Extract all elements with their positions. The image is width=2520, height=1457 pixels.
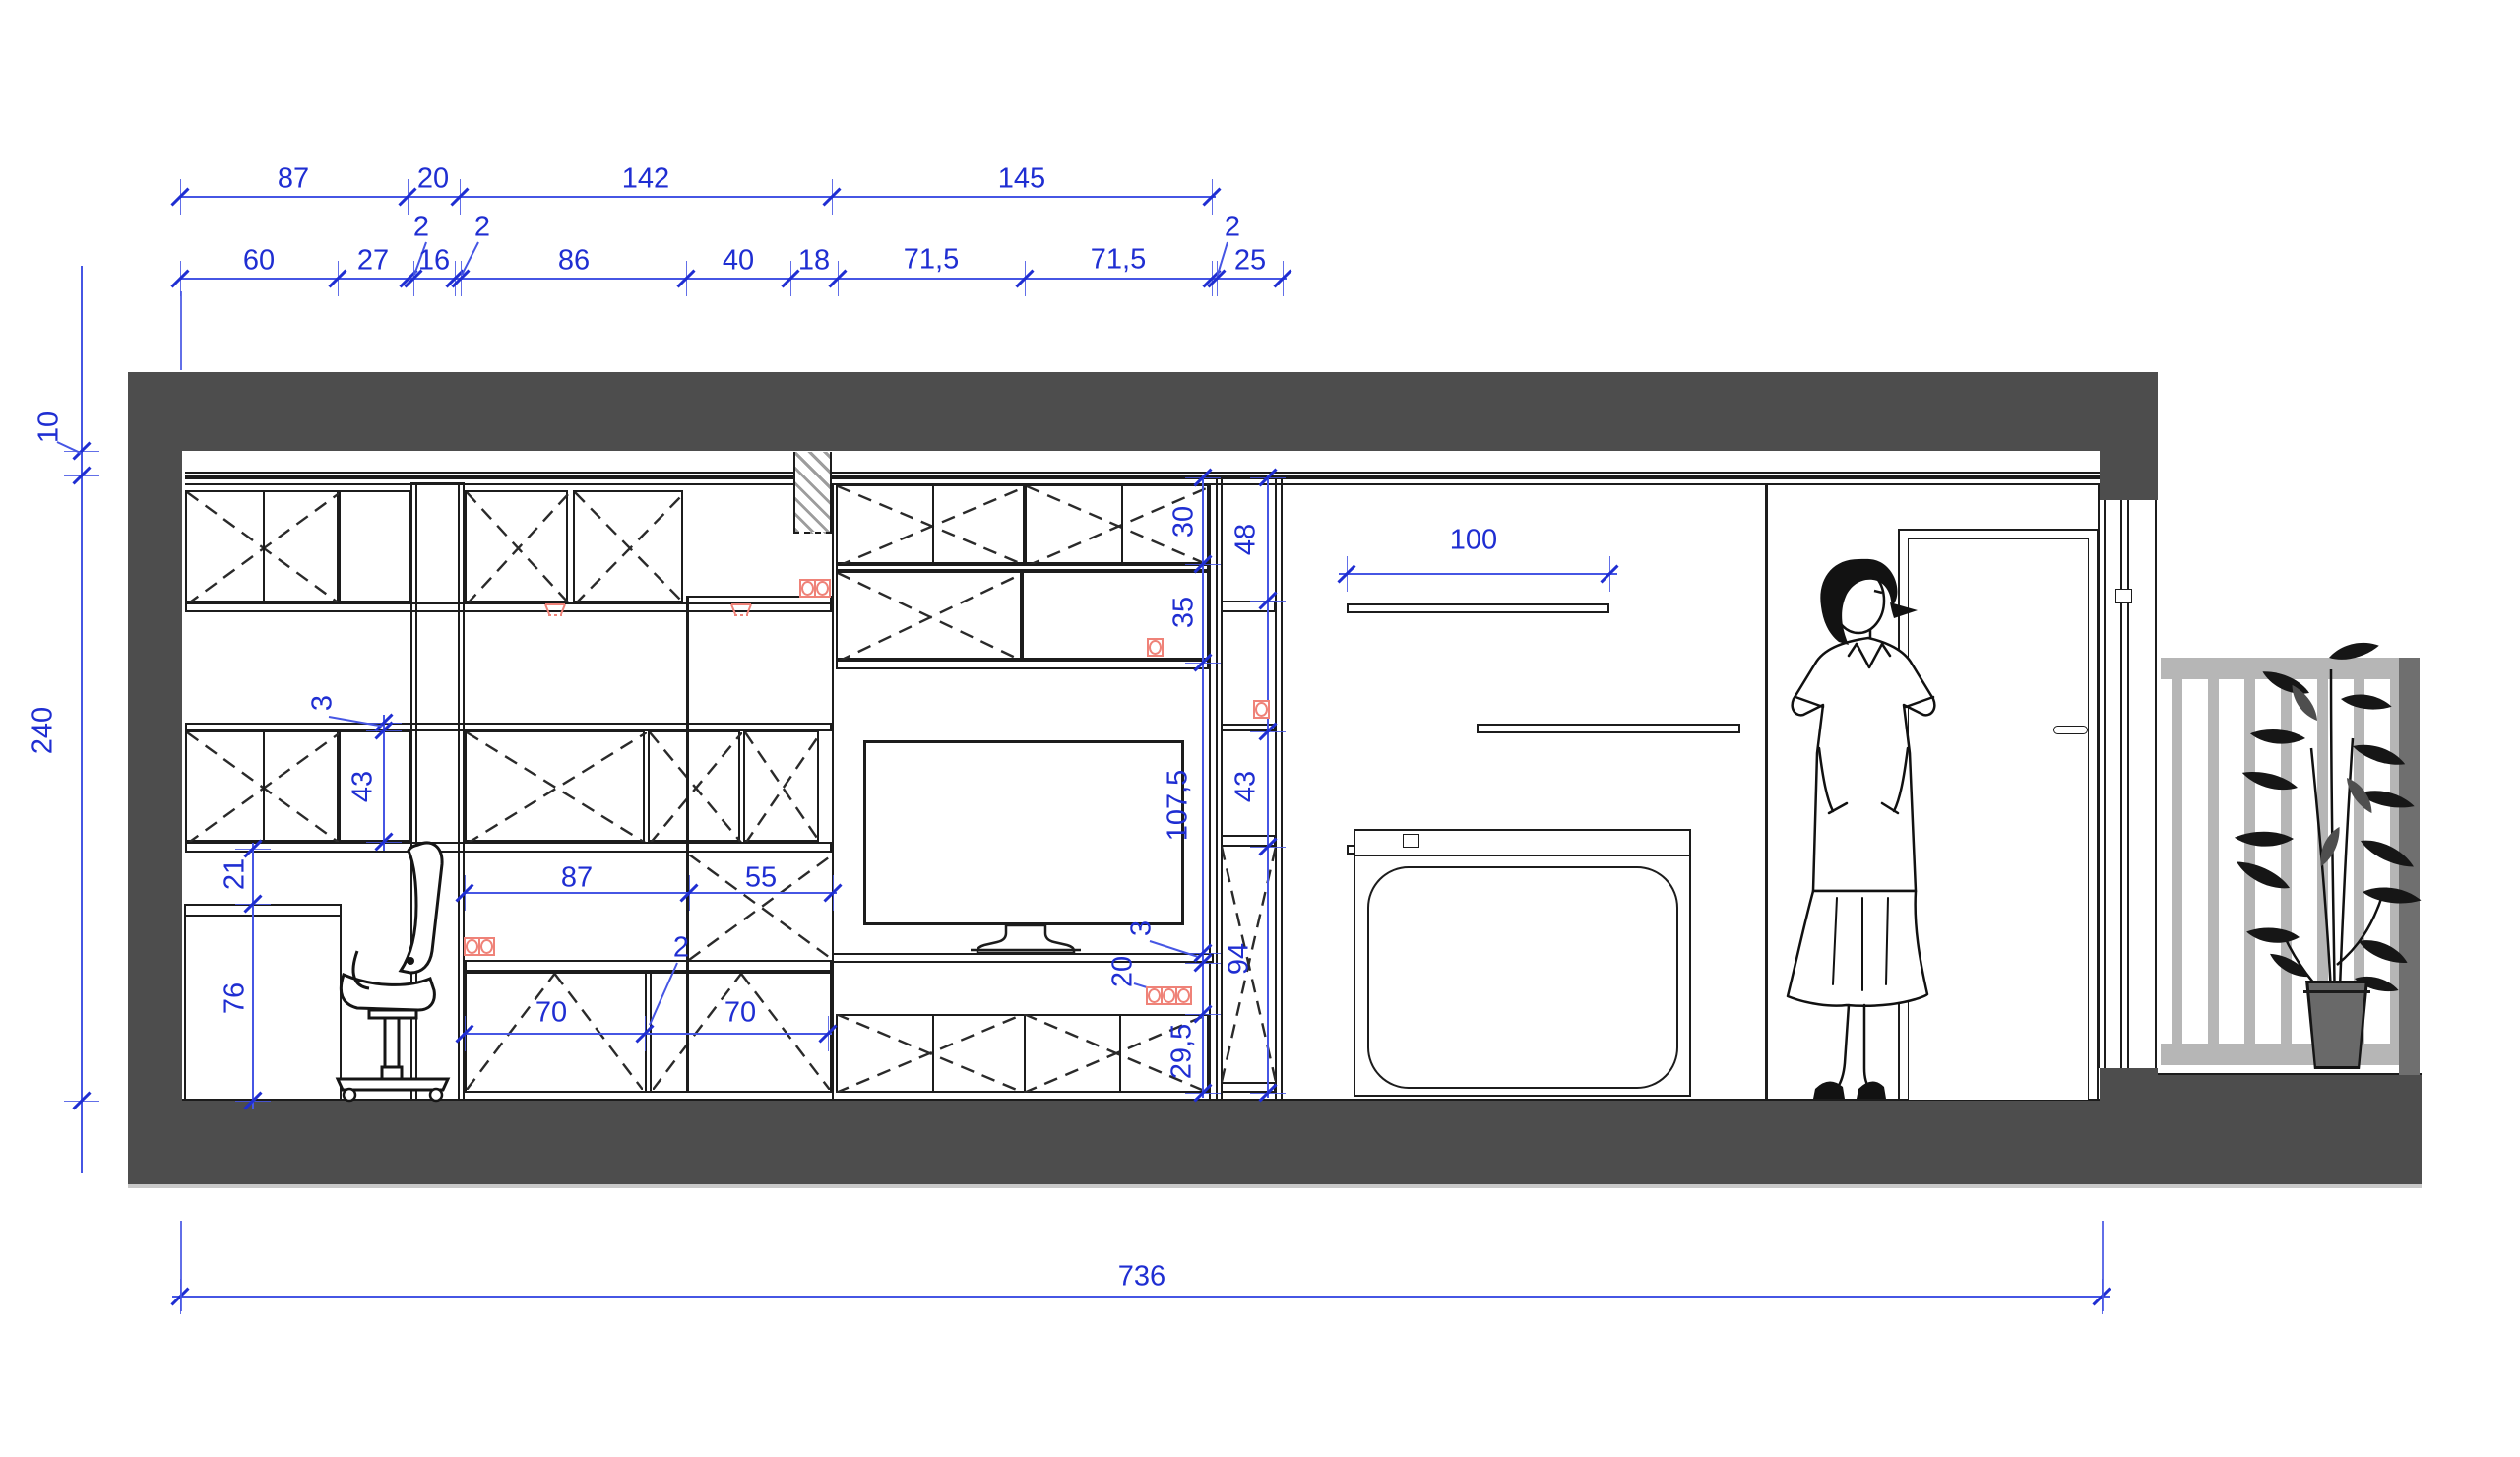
dim-label: 43 — [347, 771, 380, 802]
unit-divider — [686, 596, 689, 1093]
dim-label: 86 — [558, 245, 590, 278]
dim-label: 18 — [798, 245, 830, 278]
cabinet-box — [185, 730, 339, 842]
drawing-line — [816, 581, 829, 596]
drawing-line — [653, 974, 741, 1090]
drawing-line — [1890, 602, 1918, 618]
drawing-line — [838, 573, 1024, 662]
socket-icon — [799, 579, 831, 598]
drawing-line — [745, 732, 821, 844]
dim-label: 3 — [307, 695, 340, 711]
drawing-line — [480, 939, 493, 954]
dim-line-top-row2 — [180, 278, 1287, 280]
drawing-line — [467, 732, 647, 844]
window-frame-line — [2155, 500, 2157, 1068]
drawer-symbol — [467, 974, 643, 1090]
drawing-line — [430, 1089, 442, 1101]
cabinet-divider — [263, 492, 265, 601]
spotlight-icon — [542, 602, 568, 618]
column-side — [1216, 477, 1218, 1101]
shelf-board — [836, 564, 1209, 571]
drawing-line — [467, 974, 555, 1090]
dim-line-desk-chain — [252, 843, 254, 1109]
drawing-line — [575, 492, 685, 604]
dim-label: 35 — [1168, 597, 1201, 628]
dim-label: 71,5 — [904, 244, 959, 277]
dim-line-left-chain — [81, 266, 83, 1173]
dim-label: 94 — [1224, 943, 1256, 975]
dim-label: 40 — [723, 245, 754, 278]
drawing-line — [2245, 923, 2300, 947]
cross-lines — [650, 732, 742, 844]
drawing-line — [836, 1014, 1024, 1093]
cabinet-box — [836, 571, 1022, 660]
socket-gang — [814, 579, 831, 598]
elevation-drawing: 87201421456027216286401871,571,522510240… — [0, 0, 2520, 1457]
cross-lines — [836, 1014, 1024, 1093]
dim-label: 142 — [622, 163, 669, 196]
dim-label: 107,5 — [1163, 770, 1195, 842]
drawing-line — [2328, 640, 2381, 662]
dim-label: 71,5 — [1091, 244, 1146, 277]
drawing-line — [2249, 725, 2306, 748]
door-handle — [2053, 726, 2088, 734]
drawing-line — [467, 732, 647, 844]
socket-icon — [1147, 638, 1164, 657]
tv-unit-side — [832, 484, 834, 1101]
cross-lines — [653, 974, 830, 1090]
bathtub-overflow — [1403, 834, 1419, 848]
media-board — [832, 953, 1214, 963]
extension-line — [2102, 1221, 2104, 1311]
extension-line — [180, 291, 182, 370]
cabinet-box — [648, 730, 740, 842]
cabinet-divider — [932, 486, 934, 562]
drawing-line — [545, 604, 565, 614]
socket-gang — [1253, 700, 1270, 719]
drawing-line — [467, 492, 570, 604]
dim-line-tv-chain — [1202, 475, 1204, 1098]
office-chair — [328, 835, 458, 1103]
dim-label: 145 — [998, 163, 1045, 196]
drawing-line — [2240, 764, 2299, 797]
socket-gang — [1175, 986, 1192, 1005]
dim-label: 20 — [1107, 956, 1140, 987]
wall-shelf — [1477, 724, 1740, 733]
drawing-line — [2340, 689, 2393, 716]
wall-top-band — [128, 372, 2158, 451]
window-frame-line — [2104, 500, 2106, 1068]
tv-screen — [863, 740, 1184, 925]
cabinet-box — [743, 730, 819, 842]
drawing-line — [2351, 736, 2407, 772]
bathtub-rim-line — [1354, 855, 1691, 856]
cabinet-box — [836, 484, 1025, 564]
drawing-line — [407, 957, 414, 965]
railing-baluster — [2172, 679, 2182, 1045]
drawing-line — [401, 843, 442, 973]
cabinet-box — [465, 730, 645, 842]
drawing-line — [1793, 638, 1935, 891]
drawing-line — [385, 1018, 399, 1069]
cabinet-divider — [1121, 486, 1123, 562]
cross-lines — [467, 492, 570, 604]
dim-label: 2 — [474, 212, 490, 244]
socket-icon — [464, 937, 495, 956]
dim-line-wall-shelf — [1339, 573, 1617, 575]
drawing-line — [1148, 988, 1161, 1003]
tv-stand — [967, 923, 1085, 955]
drawing-line — [2357, 932, 2411, 971]
dim-label: 43 — [1230, 771, 1263, 802]
drawing-line — [382, 1067, 402, 1079]
niche-top — [410, 482, 465, 484]
cabinet-box — [339, 490, 410, 602]
dim-label: 60 — [243, 245, 275, 278]
column-side — [1281, 477, 1283, 1101]
dim-label: 30 — [1168, 506, 1201, 538]
dim-label: 25 — [1234, 245, 1266, 278]
cabinet-box — [465, 490, 568, 602]
balcony-floor-line — [2158, 1073, 2422, 1075]
cross-lines — [467, 974, 643, 1090]
wall-shelf — [1347, 603, 1609, 613]
dim-label: 3 — [1126, 920, 1159, 936]
dim-label: 100 — [1450, 525, 1497, 557]
ceiling-line — [185, 472, 2100, 474]
dim-label: 240 — [28, 707, 60, 754]
dim-label: 70 — [724, 997, 756, 1030]
drawing-line — [555, 974, 644, 1090]
dim-label: 87 — [561, 862, 593, 895]
window-handle — [2115, 589, 2132, 603]
drawing-line — [1177, 988, 1190, 1003]
dim-label: 20 — [417, 163, 449, 196]
drawing-line — [466, 939, 478, 954]
dim-line-mid-widths — [463, 892, 837, 894]
dim-label: 21 — [220, 858, 252, 890]
cross-lines — [467, 732, 647, 844]
drawer-symbol — [653, 974, 830, 1090]
dim-label: 2 — [1225, 212, 1240, 244]
plant-pot-rim — [2303, 990, 2370, 993]
dim-label: 29,5 — [1166, 1024, 1199, 1079]
cabinet-divider — [263, 732, 265, 840]
dim-line-right-chain — [1267, 475, 1269, 1098]
floor-slab — [128, 1101, 2100, 1184]
ceiling-line — [185, 475, 2100, 479]
niche-wall — [458, 482, 460, 1101]
drawing-line — [2234, 855, 2293, 897]
wall-window-lintel — [2100, 449, 2158, 500]
niche-wall — [463, 482, 465, 1101]
drawing-line — [338, 843, 448, 1090]
drawing-line — [575, 492, 685, 604]
dim-label: 27 — [357, 245, 389, 278]
socket-icon — [1146, 986, 1192, 1005]
drawing-line — [650, 732, 742, 844]
drawing-line — [1788, 568, 1934, 1089]
drawing-line — [1255, 702, 1268, 717]
drawing-line — [1837, 1005, 1870, 1089]
drawing-line — [801, 581, 814, 596]
desk — [184, 904, 342, 1101]
drawing-line — [838, 573, 1024, 662]
drawing-line — [836, 1014, 1024, 1093]
cross-lines — [745, 732, 821, 844]
slab-edge-line — [128, 1184, 2422, 1188]
drawing-line — [2362, 882, 2423, 909]
console-cross — [836, 1014, 1024, 1093]
cabinet-box — [185, 490, 339, 602]
socket-gang — [1147, 638, 1164, 657]
window-frame-line — [2127, 500, 2129, 1068]
socket-icon — [1253, 700, 1270, 719]
window-threshold — [2100, 1068, 2158, 1184]
cross-lines — [838, 573, 1024, 662]
drawing-line — [2234, 829, 2294, 850]
balcony-slab — [2158, 1075, 2422, 1184]
dim-label: 10 — [33, 412, 66, 443]
wall-left — [128, 372, 182, 1184]
shelf-board — [465, 960, 832, 972]
drawing-line — [467, 492, 570, 604]
dim-line-drawers — [463, 1033, 832, 1035]
drawing-line — [344, 1089, 355, 1101]
dim-label: 2 — [673, 932, 689, 965]
cabinet-box — [573, 490, 683, 602]
wall-end-line — [2098, 484, 2100, 1068]
drawing-line — [731, 604, 751, 614]
dim-label: 76 — [220, 982, 252, 1014]
desk-top-line — [184, 915, 342, 917]
drawing-line — [741, 974, 830, 1090]
dim-label: 87 — [278, 163, 309, 196]
leader-line — [461, 242, 479, 276]
window-frame-line — [2120, 500, 2122, 1068]
dim-label: 736 — [1118, 1261, 1165, 1294]
dim-line-shelf-chain — [383, 715, 385, 851]
cross-lines — [575, 492, 685, 604]
socket-gang — [478, 937, 495, 956]
dim-label: 2 — [413, 212, 429, 244]
drawing-line — [1788, 891, 1927, 1006]
drawing-line — [338, 1079, 448, 1090]
dim-label: 16 — [418, 245, 450, 278]
woman-figure — [1772, 551, 1944, 1103]
shelf-board — [185, 842, 832, 853]
bathtub-basin — [1367, 866, 1678, 1089]
drawing-line — [1857, 1081, 1886, 1099]
dim-label: 55 — [745, 862, 777, 895]
beam-section-hatch — [793, 452, 832, 534]
dim-label: 70 — [535, 997, 567, 1030]
drawing-line — [2359, 832, 2418, 874]
spotlight-icon — [728, 602, 754, 618]
drawing-line — [1163, 988, 1175, 1003]
extension-line — [180, 1221, 182, 1311]
dim-line-overall — [172, 1296, 2110, 1298]
drawing-line — [650, 732, 742, 844]
plant-pot-body — [2306, 983, 2367, 1066]
drawing-line — [1149, 640, 1162, 655]
drawing-line — [2267, 948, 2311, 984]
drawing-line — [745, 732, 821, 844]
shelf-board — [836, 660, 1209, 669]
dim-label: 48 — [1230, 524, 1263, 555]
dim-line-top-row1 — [180, 196, 1216, 198]
partition-line — [1765, 484, 1768, 1101]
